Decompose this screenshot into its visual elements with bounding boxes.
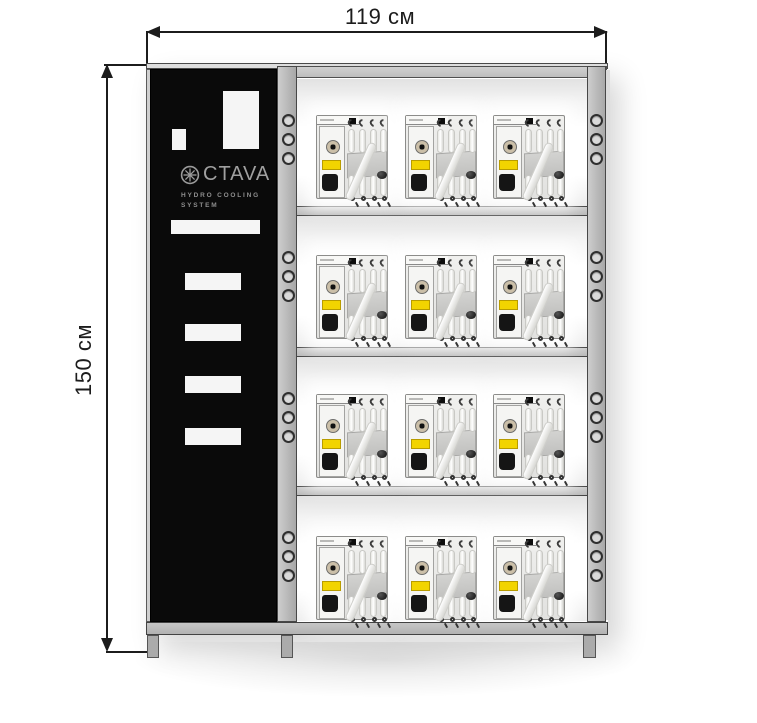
device-power-connector <box>499 595 515 612</box>
cooling-device <box>493 536 565 620</box>
device-knob <box>554 450 564 458</box>
brand-subtitle-2: SYSTEM <box>181 202 219 209</box>
device-power-connector <box>411 595 427 612</box>
device-power-connector <box>499 174 515 191</box>
tube-top <box>525 129 532 153</box>
device-warning-label <box>499 439 518 449</box>
panel-vent-slot <box>185 376 241 393</box>
device-round-connector <box>503 280 517 294</box>
tube-top <box>557 269 564 293</box>
tube-bend-icon <box>555 397 566 408</box>
device-power-connector <box>411 453 427 470</box>
tube-fitting <box>559 475 564 480</box>
tube-top <box>348 129 355 153</box>
device-power-connector <box>322 314 338 331</box>
device-warning-label <box>322 160 341 170</box>
device-round-connector <box>326 280 340 294</box>
arrowhead-left-icon <box>146 26 160 38</box>
mounting-hole <box>590 411 603 424</box>
tube-fitting <box>461 336 466 341</box>
tube-bend-icon <box>555 539 566 550</box>
tube-bottom <box>370 596 377 617</box>
tube-top <box>348 408 355 432</box>
device-warning-label <box>411 581 430 591</box>
tube-top <box>557 129 564 153</box>
tube-bend-icon <box>467 539 478 550</box>
cooling-device <box>316 394 388 478</box>
mounting-hole <box>282 270 295 283</box>
tube-fitting <box>538 617 543 622</box>
device-warning-label <box>322 581 341 591</box>
tube-bottom <box>459 315 466 336</box>
brand-name: CTAVA <box>203 163 270 186</box>
mounting-hole <box>590 289 603 302</box>
device-side-panel <box>319 266 345 338</box>
tube-fitting <box>382 475 387 480</box>
height-dimension-label: 150 см <box>71 300 97 420</box>
cooling-device <box>316 115 388 199</box>
tube-top <box>469 550 476 574</box>
device-side-panel <box>319 547 345 619</box>
panel-vent-slot <box>185 428 241 445</box>
tube-bottom <box>547 315 554 336</box>
mounting-hole <box>282 411 295 424</box>
device-knob <box>377 450 387 458</box>
cooling-device <box>316 255 388 339</box>
mounting-hole <box>282 569 295 582</box>
right-side-edge <box>606 70 610 620</box>
device-knob <box>377 592 387 600</box>
tube-fitting <box>538 475 543 480</box>
tube-bend-icon <box>446 258 457 269</box>
tube-top <box>380 408 387 432</box>
tube-bend-icon <box>357 118 368 129</box>
device-warning-label <box>411 160 430 170</box>
device-knob <box>466 311 476 319</box>
cooling-device <box>405 115 477 199</box>
arrowhead-down-icon <box>101 638 113 652</box>
tube-bend-icon <box>446 397 457 408</box>
tube-bend-icon <box>467 258 478 269</box>
device-side-panel <box>496 266 522 338</box>
cooling-device <box>405 536 477 620</box>
tube-top <box>380 550 387 574</box>
cooling-device <box>316 536 388 620</box>
device-round-connector <box>503 140 517 154</box>
tube-bend-icon <box>368 258 379 269</box>
tube-bend-icon <box>378 118 389 129</box>
mounting-hole <box>590 531 603 544</box>
device-knob <box>554 171 564 179</box>
tube-fitting <box>471 475 476 480</box>
cooling-device <box>405 255 477 339</box>
tube-fitting <box>461 617 466 622</box>
tube-bottom <box>459 596 466 617</box>
device-side-panel <box>408 266 434 338</box>
tube-fitting <box>549 475 554 480</box>
tube-bend-icon <box>467 118 478 129</box>
tube-fitting <box>549 617 554 622</box>
tube-fitting <box>450 196 455 201</box>
device-side-panel <box>408 126 434 198</box>
tube-bend-icon <box>368 539 379 550</box>
tube-fitting <box>559 617 564 622</box>
tube-bend-icon <box>368 397 379 408</box>
tube-fitting <box>450 336 455 341</box>
tube-top <box>525 408 532 432</box>
tube-top <box>348 550 355 574</box>
tube-bottom <box>547 596 554 617</box>
tube-bend-icon <box>457 118 468 129</box>
tube-bend-icon <box>534 118 545 129</box>
tube-fitting <box>361 336 366 341</box>
device-side-panel <box>496 405 522 477</box>
shelf-divider <box>277 206 607 216</box>
mounting-hole <box>282 251 295 264</box>
tube-fitting <box>461 475 466 480</box>
panel-cutout-small <box>172 129 186 150</box>
device-round-connector <box>415 561 429 575</box>
mounting-hole <box>590 251 603 264</box>
top-rail <box>277 66 607 78</box>
device-round-connector <box>326 140 340 154</box>
tube-bend-icon <box>534 539 545 550</box>
device-warning-label <box>322 439 341 449</box>
panel-cutout-large <box>223 91 259 149</box>
cabinet-leg <box>147 635 159 658</box>
mounting-hole <box>282 550 295 563</box>
tube-fitting <box>471 196 476 201</box>
tube-top <box>380 269 387 293</box>
device-round-connector <box>415 419 429 433</box>
tube-bend-icon <box>446 118 457 129</box>
device-power-connector <box>411 174 427 191</box>
device-side-panel <box>496 547 522 619</box>
rack-dimension-diagram: 119 см 150 см <box>0 0 757 723</box>
ground-shadow <box>128 642 640 698</box>
tube-fitting <box>538 196 543 201</box>
panel-vent-slot <box>185 273 241 290</box>
device-warning-label <box>411 439 430 449</box>
device-power-connector <box>499 453 515 470</box>
tube-top <box>437 269 444 293</box>
tube-fitting <box>361 617 366 622</box>
device-round-connector <box>503 419 517 433</box>
extension-line <box>104 64 147 66</box>
tube-fitting <box>361 475 366 480</box>
tube-fitting <box>361 196 366 201</box>
extension-line <box>106 651 150 653</box>
tube-bottom <box>459 175 466 196</box>
device-round-connector <box>326 419 340 433</box>
device-round-connector <box>326 561 340 575</box>
mounting-hole <box>282 531 295 544</box>
mounting-hole <box>282 152 295 165</box>
tube-top <box>437 129 444 153</box>
tube-bend-icon <box>368 118 379 129</box>
tube-top <box>557 408 564 432</box>
tube-bend-icon <box>357 258 368 269</box>
cabinet-leg <box>583 635 596 658</box>
tube-fitting <box>382 336 387 341</box>
cooling-device <box>405 394 477 478</box>
mounting-hole <box>282 114 295 127</box>
mounting-hole <box>282 289 295 302</box>
tube-bend-icon <box>357 539 368 550</box>
device-knob <box>466 450 476 458</box>
arrowhead-up-icon <box>101 64 113 78</box>
cooling-device <box>493 255 565 339</box>
shelf-divider <box>277 486 607 496</box>
tube-top <box>437 550 444 574</box>
tube-bottom <box>370 315 377 336</box>
tube-bend-icon <box>357 397 368 408</box>
tube-bend-icon <box>545 258 556 269</box>
shelf-divider <box>277 347 607 357</box>
device-knob <box>377 311 387 319</box>
tube-fitting <box>549 336 554 341</box>
tube-top <box>469 129 476 153</box>
cooling-device <box>493 394 565 478</box>
device-side-panel <box>319 126 345 198</box>
device-side-panel <box>408 405 434 477</box>
mounting-hole <box>590 152 603 165</box>
width-dimension-label: 119 см <box>300 4 460 30</box>
tube-top <box>557 550 564 574</box>
tube-fitting <box>549 196 554 201</box>
device-power-connector <box>322 174 338 191</box>
mounting-hole <box>590 569 603 582</box>
mounting-hole <box>590 133 603 146</box>
tube-fitting <box>450 475 455 480</box>
tube-fitting <box>372 196 377 201</box>
tube-fitting <box>538 336 543 341</box>
tube-fitting <box>559 196 564 201</box>
tube-bottom <box>547 175 554 196</box>
impeller-icon <box>180 165 200 185</box>
brand-subtitle-1: HYDRO COOLING <box>181 192 260 199</box>
device-knob <box>554 592 564 600</box>
panel-slot-wide <box>171 220 260 234</box>
mounting-hole <box>282 392 295 405</box>
brand-logo: CTAVA <box>180 163 270 186</box>
device-knob <box>554 311 564 319</box>
device-knob <box>377 171 387 179</box>
tube-top <box>348 269 355 293</box>
tube-fitting <box>559 336 564 341</box>
tube-bend-icon <box>378 539 389 550</box>
tube-bend-icon <box>545 539 556 550</box>
panel-vent-slot <box>185 324 241 341</box>
tube-bend-icon <box>534 258 545 269</box>
tube-top <box>380 129 387 153</box>
device-round-connector <box>503 561 517 575</box>
device-round-connector <box>415 140 429 154</box>
device-side-panel <box>496 126 522 198</box>
cabinet-leg <box>281 635 293 658</box>
device-knob <box>466 592 476 600</box>
tube-top <box>437 408 444 432</box>
mounting-hole <box>590 430 603 443</box>
tube-top <box>469 408 476 432</box>
tube-bend-icon <box>457 258 468 269</box>
tube-fitting <box>450 617 455 622</box>
mounting-hole <box>282 430 295 443</box>
tube-bend-icon <box>467 397 478 408</box>
mounting-hole <box>590 550 603 563</box>
device-power-connector <box>322 453 338 470</box>
tube-bend-icon <box>378 258 389 269</box>
tube-fitting <box>382 617 387 622</box>
device-side-panel <box>408 547 434 619</box>
tube-fitting <box>372 617 377 622</box>
width-dimension-line <box>149 31 605 33</box>
tube-bottom <box>370 175 377 196</box>
tube-bend-icon <box>545 118 556 129</box>
tube-fitting <box>372 336 377 341</box>
tube-top <box>525 550 532 574</box>
mounting-hole <box>282 133 295 146</box>
tube-top <box>469 269 476 293</box>
tube-bottom <box>547 454 554 475</box>
device-warning-label <box>499 581 518 591</box>
device-round-connector <box>415 280 429 294</box>
tube-bend-icon <box>555 258 566 269</box>
device-warning-label <box>499 160 518 170</box>
device-side-panel <box>319 405 345 477</box>
tube-bend-icon <box>457 397 468 408</box>
tube-bend-icon <box>457 539 468 550</box>
mounting-hole <box>590 114 603 127</box>
tube-bend-icon <box>534 397 545 408</box>
device-power-connector <box>499 314 515 331</box>
extension-line <box>605 31 607 65</box>
device-knob <box>466 171 476 179</box>
tube-bend-icon <box>545 397 556 408</box>
tube-fitting <box>372 475 377 480</box>
tube-fitting <box>471 617 476 622</box>
tube-bend-icon <box>555 118 566 129</box>
tube-bend-icon <box>446 539 457 550</box>
tube-bend-icon <box>378 397 389 408</box>
control-panel: CTAVA HYDRO COOLING SYSTEM <box>150 69 277 622</box>
tube-bottom <box>370 454 377 475</box>
height-dimension-line <box>106 66 108 649</box>
cooling-device <box>493 115 565 199</box>
device-warning-label <box>322 300 341 310</box>
mounting-hole <box>590 270 603 283</box>
device-warning-label <box>411 300 430 310</box>
mounting-hole <box>590 392 603 405</box>
tube-fitting <box>382 196 387 201</box>
device-power-connector <box>411 314 427 331</box>
tube-top <box>525 269 532 293</box>
tube-fitting <box>461 196 466 201</box>
tube-bottom <box>459 454 466 475</box>
tube-fitting <box>471 336 476 341</box>
device-warning-label <box>499 300 518 310</box>
device-power-connector <box>322 595 338 612</box>
